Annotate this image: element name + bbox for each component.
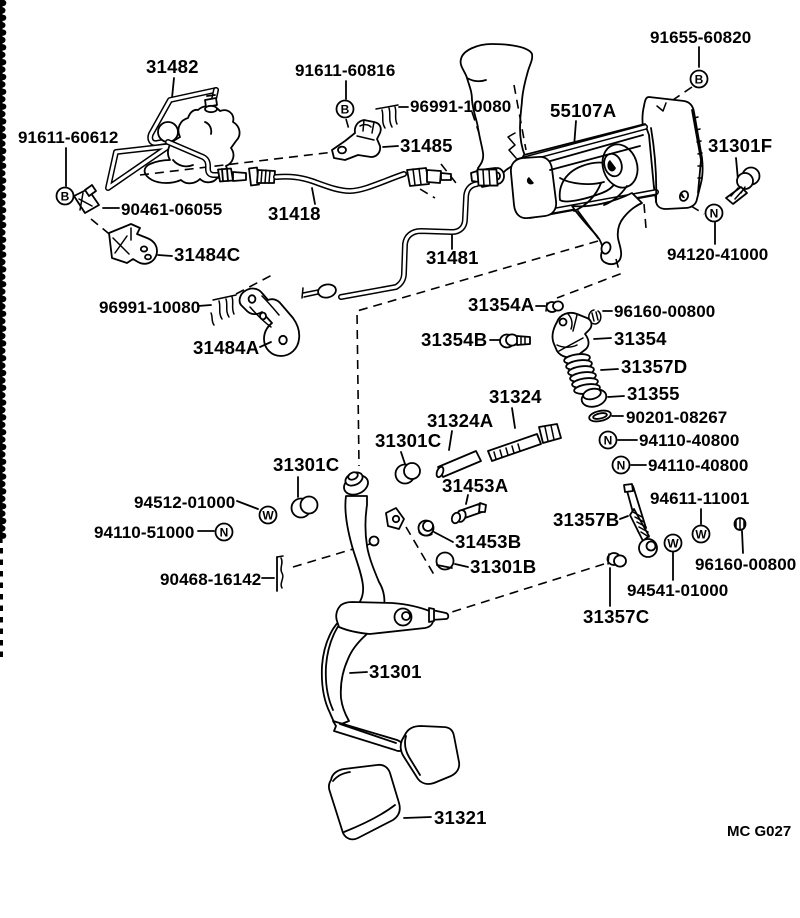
svg-text:W: W <box>667 537 679 551</box>
svg-text:94512-01000: 94512-01000 <box>134 493 235 512</box>
svg-text:31484A: 31484A <box>193 337 259 358</box>
svg-text:96160-00800: 96160-00800 <box>695 555 796 574</box>
svg-text:N: N <box>617 459 626 473</box>
svg-text:N: N <box>604 434 613 448</box>
svg-text:31321: 31321 <box>434 807 487 828</box>
svg-text:MC G027: MC G027 <box>727 823 791 840</box>
svg-text:31485: 31485 <box>400 135 453 156</box>
svg-text:94611-11001: 94611-11001 <box>650 489 749 508</box>
svg-text:W: W <box>695 528 707 542</box>
svg-text:31301C: 31301C <box>273 454 339 475</box>
svg-text:31354: 31354 <box>614 328 667 349</box>
svg-text:94120-41000: 94120-41000 <box>667 245 768 264</box>
svg-text:96160-00800: 96160-00800 <box>614 302 715 321</box>
svg-text:31482: 31482 <box>146 56 199 77</box>
svg-text:31484C: 31484C <box>174 244 240 265</box>
svg-text:31418: 31418 <box>268 203 321 224</box>
svg-text:31324A: 31324A <box>427 410 493 431</box>
svg-text:31324: 31324 <box>489 386 542 407</box>
svg-text:90201-08267: 90201-08267 <box>626 408 727 427</box>
svg-text:B: B <box>695 73 704 87</box>
svg-text:90468-16142: 90468-16142 <box>160 570 261 589</box>
svg-text:N: N <box>710 207 719 221</box>
svg-text:94110-51000: 94110-51000 <box>94 523 194 542</box>
svg-text:91611-60816: 91611-60816 <box>295 61 395 80</box>
svg-text:31453B: 31453B <box>455 531 521 552</box>
svg-text:31354A: 31354A <box>468 294 534 315</box>
svg-text:31481: 31481 <box>426 247 479 268</box>
svg-text:94110-40800: 94110-40800 <box>648 456 748 475</box>
svg-text:31354B: 31354B <box>421 329 487 350</box>
svg-text:55107A: 55107A <box>550 100 616 121</box>
svg-text:31355: 31355 <box>627 383 680 404</box>
svg-text:31357D: 31357D <box>621 356 687 377</box>
svg-text:31357C: 31357C <box>583 606 649 627</box>
svg-text:31453A: 31453A <box>442 475 508 496</box>
svg-text:W: W <box>262 509 274 523</box>
svg-text:31301F: 31301F <box>708 135 772 156</box>
svg-text:31357B: 31357B <box>553 509 619 530</box>
svg-text:31301B: 31301B <box>470 556 536 577</box>
svg-text:N: N <box>220 526 229 540</box>
svg-text:B: B <box>61 190 70 204</box>
svg-text:94110-40800: 94110-40800 <box>639 431 739 450</box>
svg-text:91611-60612: 91611-60612 <box>18 128 118 147</box>
svg-text:96991-10080: 96991-10080 <box>410 97 511 116</box>
svg-text:96991-10080: 96991-10080 <box>99 298 200 317</box>
svg-text:B: B <box>341 103 350 117</box>
svg-text:31301: 31301 <box>369 661 422 682</box>
svg-text:90461-06055: 90461-06055 <box>121 200 222 219</box>
svg-text:94541-01000: 94541-01000 <box>627 581 728 600</box>
svg-text:91655-60820: 91655-60820 <box>650 28 751 47</box>
svg-text:31301C: 31301C <box>375 430 441 451</box>
